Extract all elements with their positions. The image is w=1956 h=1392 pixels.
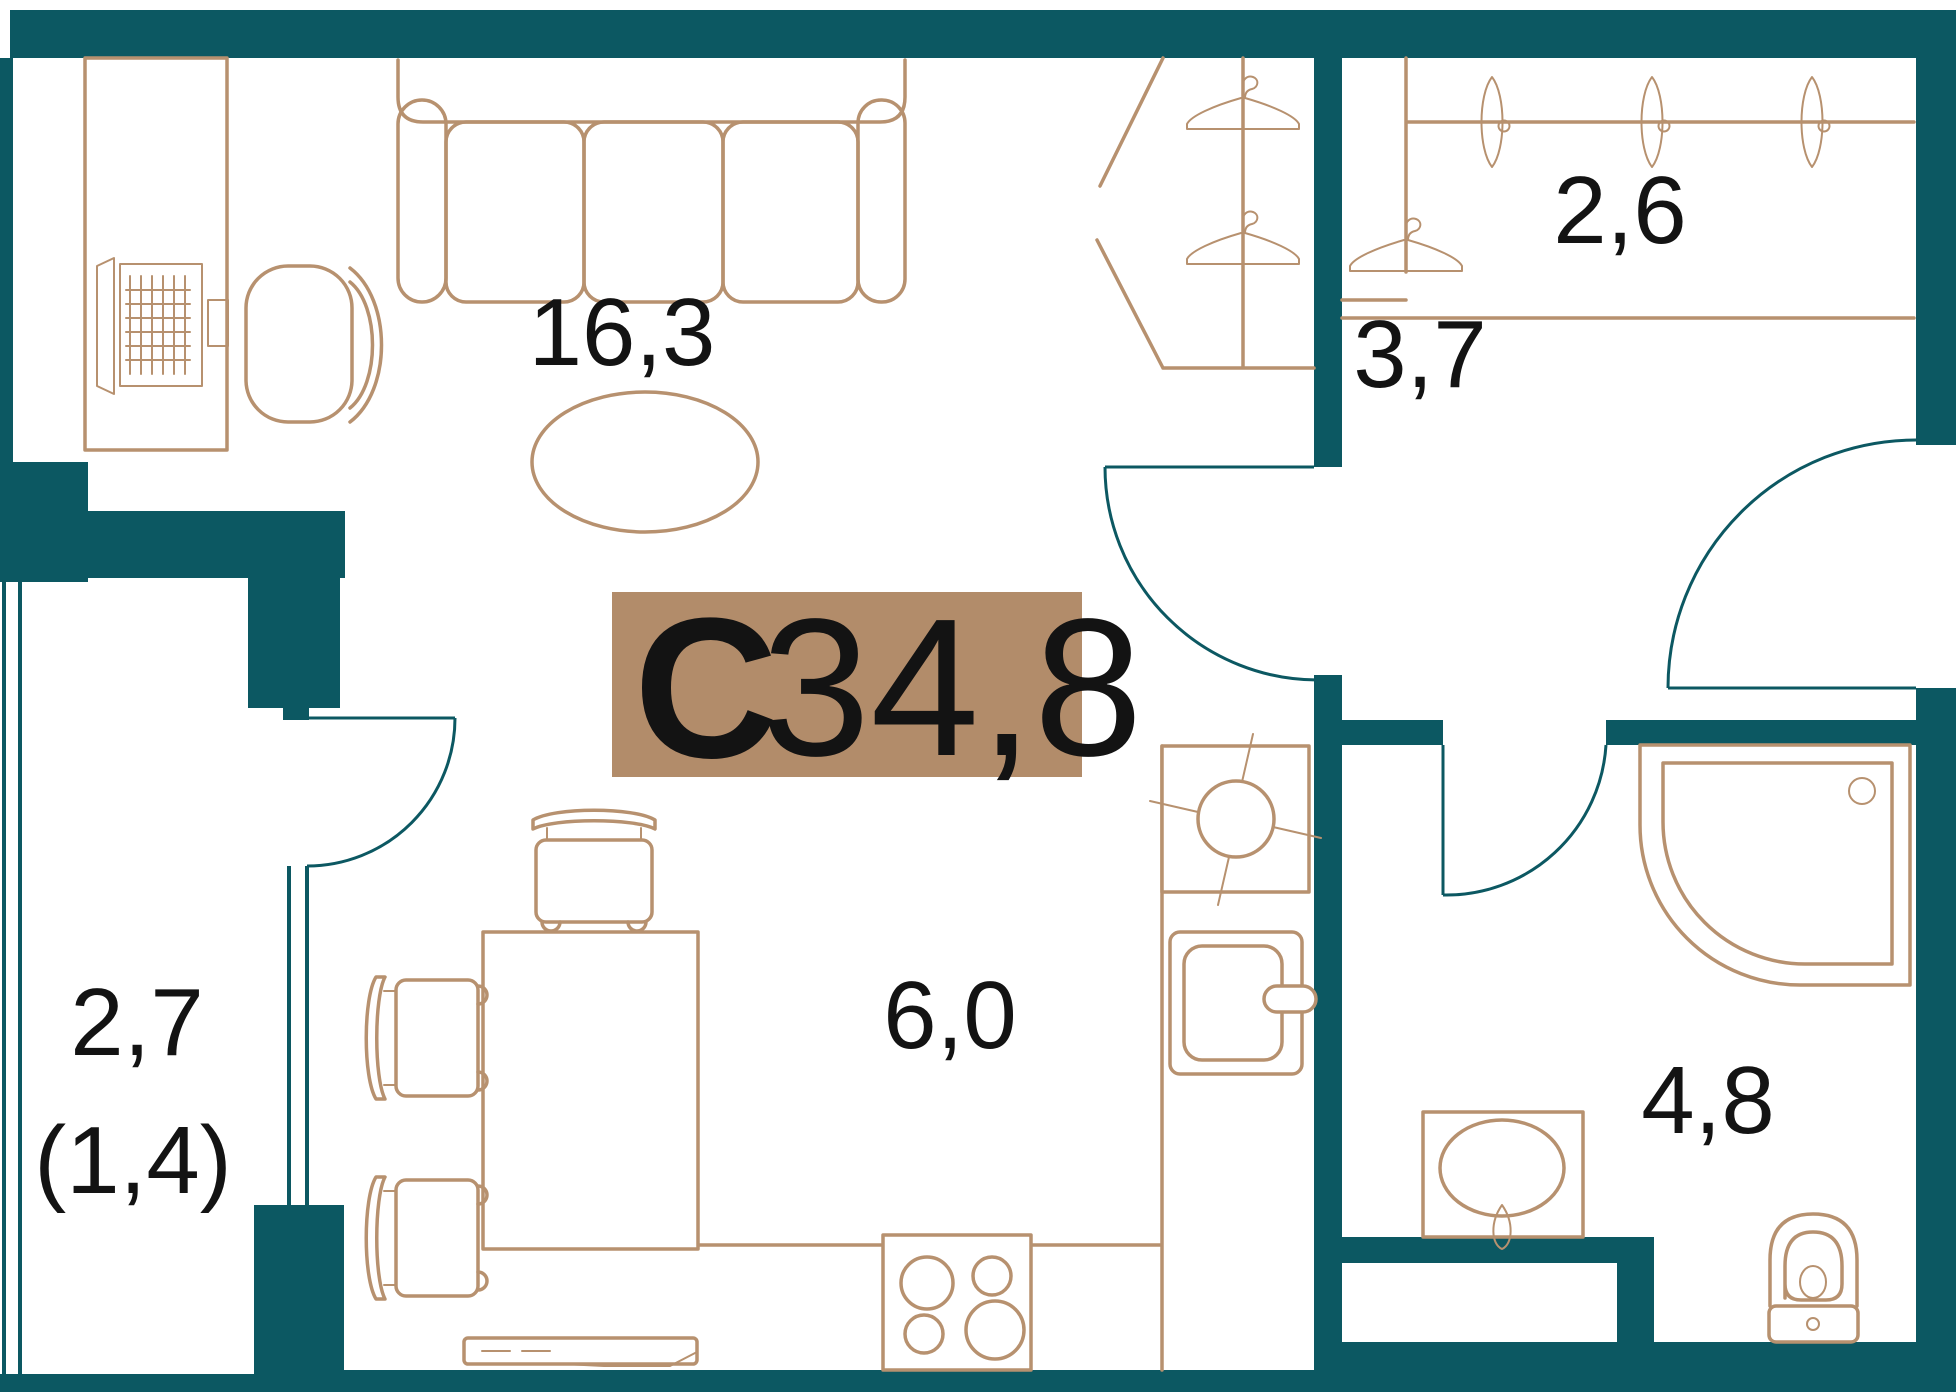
desk <box>85 58 228 450</box>
wall-bath-top-right <box>1606 720 1916 745</box>
dining-chair <box>366 977 487 1099</box>
wall-right-lower <box>1916 688 1956 1392</box>
balcony-window-outer <box>4 582 20 1374</box>
entrance-door <box>1668 440 1916 688</box>
wall-shaft-right <box>1617 1263 1654 1348</box>
wall-balcony-bottom <box>0 1374 254 1392</box>
balcony-window-inner <box>289 866 307 1205</box>
bathroom-door <box>1443 745 1606 895</box>
total-area-label: 34,8 <box>761 578 1142 797</box>
kitchen-sink <box>1170 932 1316 1074</box>
wall-top <box>10 10 1956 58</box>
toilet <box>1769 1214 1858 1342</box>
bathroom-sink <box>1423 1112 1583 1249</box>
living-room-area: 16,3 <box>529 279 716 386</box>
washing-machine <box>1150 734 1321 905</box>
unit-type-label: С <box>634 577 778 800</box>
wall-bottom-bath <box>1314 1342 1956 1392</box>
sofa <box>398 60 905 302</box>
wall-balcony-band <box>0 511 345 578</box>
wall-balcony-pier-bottom <box>254 1205 344 1392</box>
wall-main-vertical-upper <box>1314 58 1342 467</box>
bathroom-area: 4,8 <box>1641 1047 1774 1154</box>
stove <box>883 1235 1031 1370</box>
laptop-icon <box>97 258 228 394</box>
balcony-area: 2,7 <box>70 969 203 1076</box>
dining-chair <box>366 1177 487 1299</box>
dining-chair <box>533 810 655 931</box>
wall-door-stub <box>283 708 309 720</box>
wall-left-strip <box>0 58 13 462</box>
corner-wardrobe <box>1097 58 1314 368</box>
wall-balcony-pier-top <box>248 578 340 708</box>
dining-table <box>483 932 698 1249</box>
wall-shaft-top <box>1342 1237 1654 1263</box>
wall-bottom-kitchen <box>344 1370 1342 1392</box>
hallway-area: 3,7 <box>1353 301 1486 408</box>
wall-main-vertical-lower <box>1314 675 1342 1392</box>
wall-bath-top-left <box>1342 720 1443 745</box>
balcony-reduced-area: (1,4) <box>34 1107 231 1214</box>
wall-right-upper <box>1916 10 1956 445</box>
bench <box>464 1338 697 1366</box>
shower <box>1640 745 1910 985</box>
wardrobe-area: 2,6 <box>1553 157 1686 264</box>
floor-plan: С 34,8 16,3 2,6 3,7 6,0 4,8 2,7 (1,4) <box>0 0 1956 1392</box>
kitchen-area: 6,0 <box>883 962 1016 1069</box>
rug <box>532 392 758 532</box>
balcony-door <box>307 718 455 866</box>
unit-badge: С 34,8 <box>612 577 1143 800</box>
office-chair <box>246 266 382 422</box>
